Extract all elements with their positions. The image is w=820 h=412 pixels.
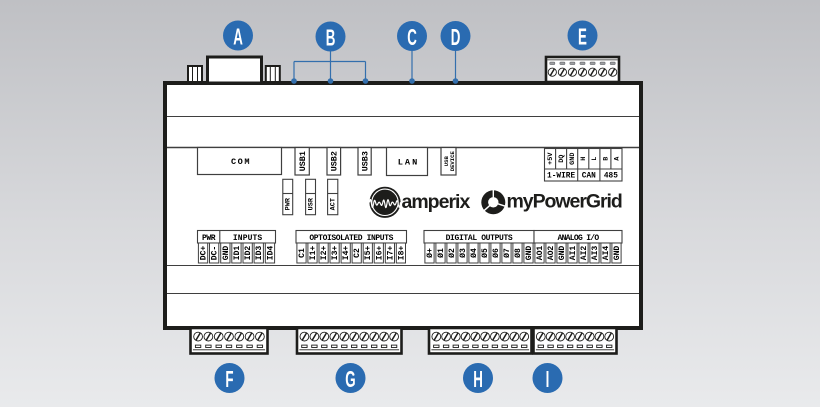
svg-text:GND: GND (525, 246, 534, 261)
svg-text:GND: GND (569, 153, 577, 165)
svg-text:I2+: I2+ (320, 246, 329, 261)
svg-text:DEVICE: DEVICE (449, 150, 456, 171)
svg-text:USR: USR (307, 197, 315, 210)
svg-text:DC-: DC- (211, 246, 220, 261)
svg-text:LAN: LAN (398, 158, 419, 168)
svg-text:E: E (578, 23, 587, 49)
svg-text:ID2: ID2 (244, 246, 253, 261)
svg-text:D: D (451, 24, 461, 50)
svg-text:Ø1: Ø1 (437, 248, 446, 258)
svg-text:USB3: USB3 (361, 151, 371, 171)
svg-text:ID4: ID4 (266, 246, 275, 261)
svg-text:USB2: USB2 (330, 151, 340, 171)
svg-text:F: F (225, 366, 233, 392)
svg-text:INPUTS: INPUTS (233, 234, 263, 243)
svg-text:Ø8: Ø8 (514, 248, 523, 258)
svg-text:G: G (345, 366, 355, 392)
svg-text:I1+: I1+ (309, 246, 318, 261)
svg-text:H: H (473, 366, 483, 392)
svg-text:A: A (233, 23, 243, 49)
svg-text:PWR: PWR (202, 234, 216, 243)
svg-text:OPTOISOLATED INPUTS: OPTOISOLATED INPUTS (309, 234, 393, 243)
svg-text:I6+: I6+ (375, 246, 384, 261)
svg-text:Ø+: Ø+ (426, 248, 435, 258)
svg-text:AI3: AI3 (591, 246, 600, 261)
svg-text:AI4: AI4 (602, 246, 611, 261)
svg-text:myPowerGrid: myPowerGrid (507, 191, 622, 213)
svg-text:AI2: AI2 (580, 246, 589, 261)
svg-text:AI1: AI1 (569, 246, 578, 261)
svg-text:I8+: I8+ (397, 246, 406, 261)
svg-text:USB1: USB1 (298, 151, 308, 171)
svg-text:COM: COM (231, 157, 251, 167)
svg-text:I4+: I4+ (342, 246, 351, 261)
svg-text:DC+: DC+ (200, 246, 209, 261)
svg-text:ID3: ID3 (255, 246, 264, 261)
svg-text:DIGITAL OUTPUTS: DIGITAL OUTPUTS (446, 234, 513, 243)
svg-text:B: B (326, 24, 336, 50)
svg-text:I3+: I3+ (331, 246, 340, 261)
svg-text:GND: GND (222, 246, 231, 261)
svg-text:amperix: amperix (402, 191, 471, 213)
svg-text:I: I (546, 366, 550, 392)
svg-text:Ø2: Ø2 (448, 248, 457, 258)
svg-text:AO1: AO1 (536, 246, 545, 261)
svg-text:Ø3: Ø3 (459, 248, 468, 258)
svg-text:C1: C1 (298, 248, 307, 258)
svg-text:+5V: +5V (547, 152, 555, 165)
svg-text:Ø6: Ø6 (492, 248, 501, 258)
svg-text:H: H (580, 157, 588, 161)
svg-text:C: C (407, 24, 417, 50)
svg-text:485: 485 (604, 173, 618, 181)
svg-text:Ø7: Ø7 (503, 248, 512, 258)
svg-text:DQ: DQ (558, 155, 566, 163)
svg-text:I7+: I7+ (386, 246, 395, 261)
svg-text:C2: C2 (353, 248, 362, 258)
svg-text:L: L (591, 157, 599, 161)
svg-text:AO2: AO2 (547, 246, 556, 261)
svg-text:ANALOG I/O: ANALOG I/O (557, 234, 599, 243)
svg-text:B: B (602, 157, 610, 161)
svg-text:I5+: I5+ (364, 246, 373, 261)
svg-text:Ø5: Ø5 (481, 248, 490, 258)
svg-text:Ø4: Ø4 (470, 248, 479, 258)
svg-text:ACT: ACT (330, 198, 338, 210)
svg-text:PWR: PWR (285, 197, 293, 210)
svg-text:1-WIRE: 1-WIRE (547, 173, 575, 181)
svg-text:ID1: ID1 (233, 246, 242, 261)
svg-text:GND: GND (558, 246, 567, 261)
svg-text:CAN: CAN (582, 173, 596, 181)
svg-text:GND: GND (613, 246, 622, 261)
